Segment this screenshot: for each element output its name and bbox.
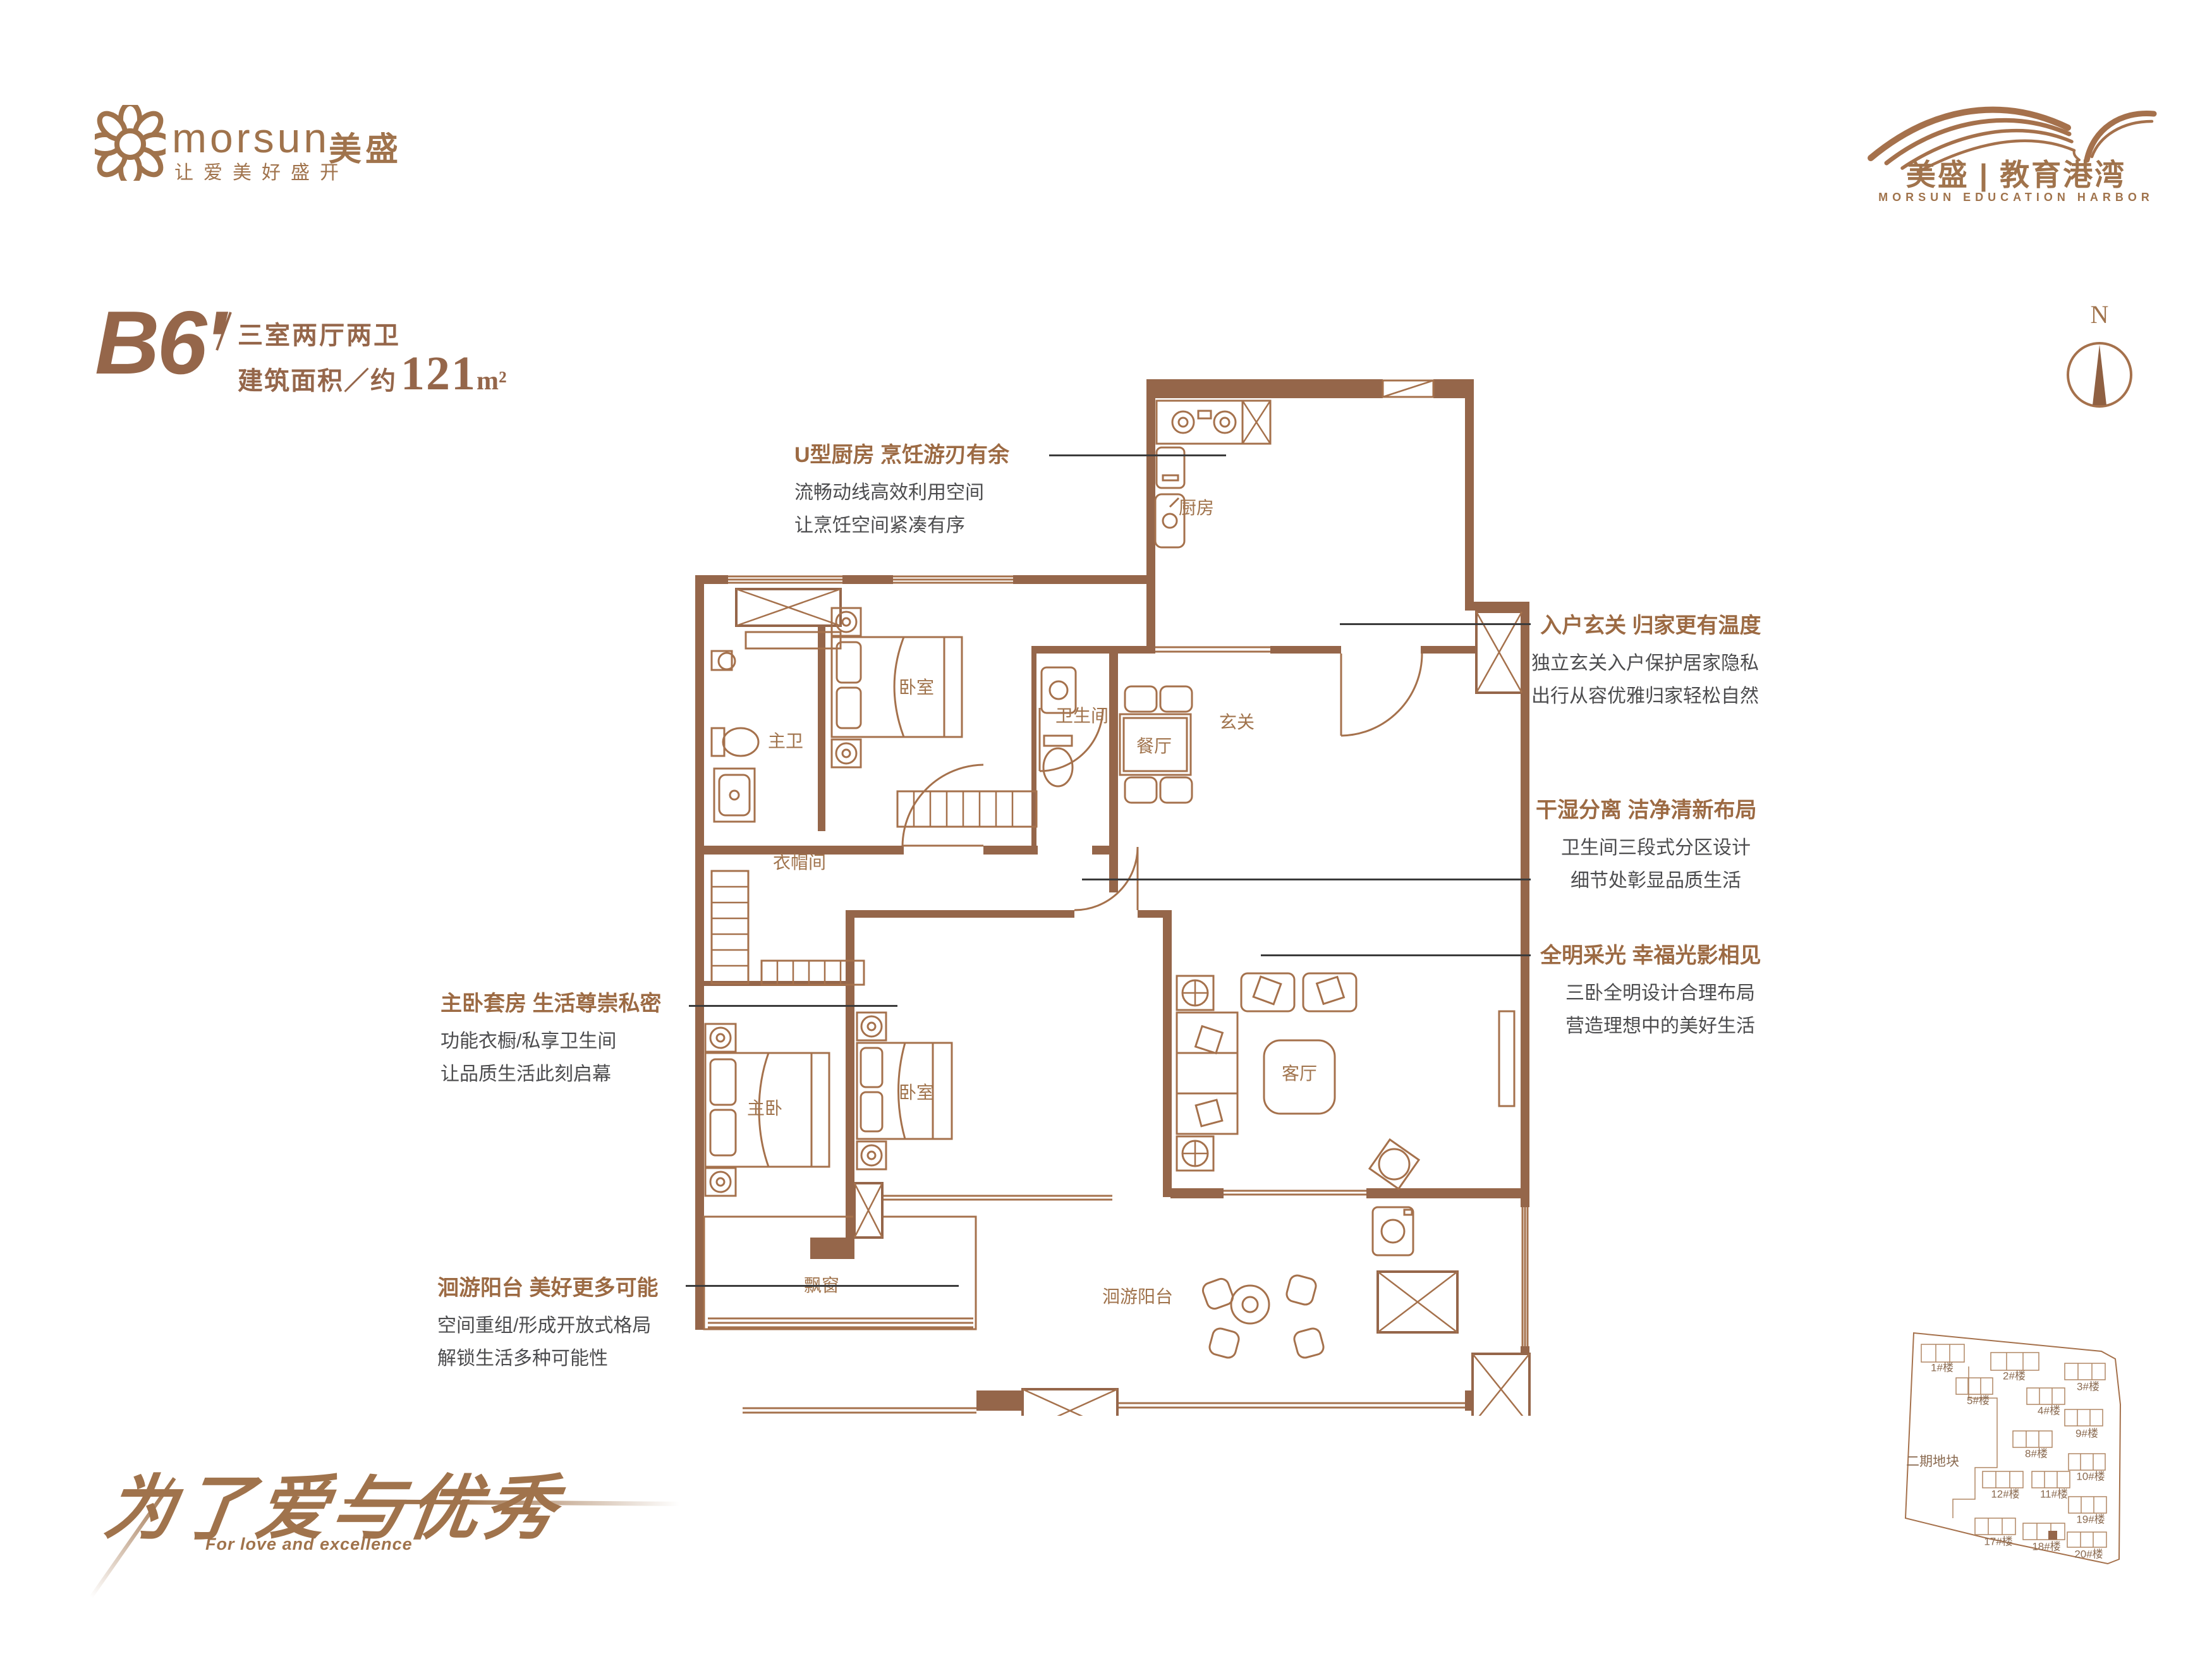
cloakroom-furniture: [712, 871, 864, 985]
brand-name: morsun: [172, 114, 330, 162]
leader-dry-wet: [1082, 879, 1531, 880]
room-label-master-bath: 主卫: [768, 727, 803, 753]
area-value: 121: [401, 346, 477, 401]
annotation-line: 三卧全明设计合理布局: [1540, 977, 1780, 1010]
room-label-foyer: 玄关: [1219, 709, 1255, 734]
annotation-foyer: 入户玄关 归家更有温度 独立玄关入户保护居家隐私 出行从容优雅归家轻松自然: [1531, 613, 1761, 713]
annotation-line: 流畅动线高效利用空间: [794, 477, 1009, 509]
building-label: 3#楼: [2057, 1378, 2120, 1394]
room-label-bath: 卫生间: [1055, 702, 1109, 727]
building-label: 4#楼: [2017, 1402, 2081, 1418]
leader-kitchen: [1049, 454, 1226, 456]
leader-foyer: [1340, 623, 1531, 625]
leader-master: [689, 1005, 897, 1007]
annotation-title: 入户玄关 归家更有温度: [1531, 613, 1761, 638]
annotation-kitchen: U型厨房 烹饪游刃有余 流畅动线高效利用空间 让烹饪空间紧凑有序: [794, 442, 1009, 542]
building-label: 8#楼: [2005, 1445, 2068, 1461]
leader-balcony: [686, 1285, 959, 1287]
plan-doors: [902, 654, 1422, 910]
slogan-en: For love and excellence: [205, 1535, 413, 1554]
annotation-title: 主卧套房 生活尊崇私密: [441, 991, 661, 1016]
bedroom-a-furniture: [832, 608, 1036, 827]
building-label: 19#楼: [2059, 1511, 2122, 1526]
kitchen-furniture: [1155, 401, 1270, 547]
annotation-title: U型厨房 烹饪游刃有余: [794, 442, 1009, 468]
project-name-en: MORSUN EDUCATION HARBOR: [1864, 191, 2168, 204]
annotation-dry-wet: 干湿分离 洁净清新布局 卫生间三段式分区设计 细节处彰显品质生活: [1536, 798, 1776, 897]
brand-tagline: 让爱美好盛开: [174, 157, 349, 185]
room-label-living: 客厅: [1282, 1060, 1317, 1085]
building-label: 9#楼: [2055, 1425, 2118, 1440]
unit-area: 建筑面积／约 121 m²: [238, 346, 507, 401]
area-unit: m²: [477, 366, 507, 396]
balcony-furniture: [1201, 1207, 1457, 1360]
flower-icon: [95, 105, 166, 181]
room-label-bay-window: 飘窗: [804, 1272, 839, 1297]
compass-north-label: N: [2081, 300, 2118, 329]
project-name: 美盛 | 教育港湾: [1864, 150, 2168, 194]
annotation-line: 细节处彰显品质生活: [1536, 865, 1776, 897]
building-label: 1#楼: [1911, 1359, 1974, 1375]
bay-window-outline: [704, 1217, 976, 1329]
annotation-line: 让品质生活此刻启幕: [441, 1058, 661, 1091]
floorplan-poster: { "brand": { "name": "morsun", "name_cn"…: [0, 0, 2212, 1661]
annotation-line: 让烹饪空间紧凑有序: [794, 509, 1009, 542]
room-label-dining: 餐厅: [1136, 733, 1172, 758]
annotation-title: 全明采光 幸福光影相见: [1540, 943, 1780, 968]
room-label-master: 主卧: [747, 1095, 782, 1120]
area-label: 建筑面积／约: [238, 360, 397, 397]
room-label-bedroom-b: 卧室: [899, 1079, 934, 1104]
building-label: 20#楼: [2057, 1545, 2120, 1561]
annotation-line: 营造理想中的美好生活: [1540, 1010, 1780, 1043]
annotation-line: 空间重组/形成开放式格局: [437, 1310, 658, 1342]
annotation-line: 出行从容优雅归家轻松自然: [1531, 680, 1761, 713]
leader-daylight: [1261, 954, 1531, 956]
annotation-title: 洄游阳台 美好更多可能: [437, 1275, 658, 1301]
annotation-title: 干湿分离 洁净清新布局: [1536, 798, 1776, 823]
annotation-line: 卫生间三段式分区设计: [1536, 832, 1776, 865]
annotation-master: 主卧套房 生活尊崇私密 功能衣橱/私享卫生间 让品质生活此刻启幕: [441, 991, 661, 1091]
site-plan: [1893, 1310, 2177, 1575]
annotation-daylight: 全明采光 幸福光影相见 三卧全明设计合理布局 营造理想中的美好生活: [1540, 943, 1780, 1043]
annotation-line: 功能衣橱/私享卫生间: [441, 1025, 661, 1058]
room-label-kitchen: 厨房: [1179, 494, 1214, 520]
annotation-balcony: 洄游阳台 美好更多可能 空间重组/形成开放式格局 解锁生活多种可能性: [437, 1275, 658, 1375]
annotation-line: 解锁生活多种可能性: [437, 1342, 658, 1375]
unit-code: B6': [95, 296, 223, 391]
annotation-line: 独立玄关入户保护居家隐私: [1531, 647, 1761, 680]
room-label-bedroom-a: 卧室: [899, 674, 934, 699]
living-furniture: [1177, 973, 1514, 1189]
building-label: 11#楼: [2022, 1485, 2086, 1501]
room-label-cloakroom: 衣帽间: [773, 849, 826, 874]
building-label: 5#楼: [1947, 1392, 2010, 1408]
building-label: 2#楼: [1983, 1367, 2046, 1383]
room-label-balcony: 洄游阳台: [1102, 1283, 1173, 1308]
site-phase-label: 二期地块: [1879, 1451, 1986, 1470]
building-label: 10#楼: [2059, 1468, 2122, 1483]
compass-icon: [2062, 327, 2137, 422]
